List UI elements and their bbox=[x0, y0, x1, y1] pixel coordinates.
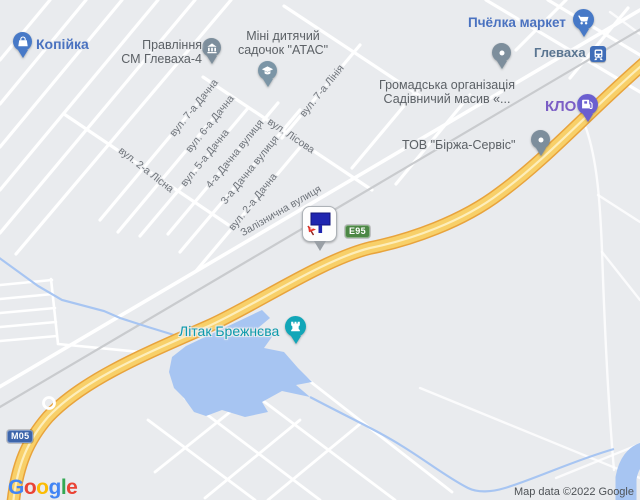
poi-label-line: садочок "АТАС" bbox=[238, 43, 328, 57]
logo-letter: g bbox=[49, 476, 61, 499]
poi-pin-atas[interactable] bbox=[258, 61, 277, 87]
poi-label-line: СМ Глеваха-4 bbox=[121, 52, 202, 66]
google-logo[interactable]: Google bbox=[8, 476, 77, 500]
fuel-pump-icon bbox=[581, 98, 594, 111]
poi-label-klo[interactable]: КЛО bbox=[545, 99, 576, 116]
poi-label-line: Міні дитячий bbox=[246, 29, 320, 43]
logo-letter: o bbox=[24, 476, 36, 499]
map-attribution: Map data ©2022 Google bbox=[514, 486, 634, 498]
poi-label-kopiyka[interactable]: Копійка bbox=[36, 37, 89, 53]
billboard-marker[interactable] bbox=[302, 206, 337, 252]
poi-label-pchelka[interactable]: Пчёлка маркет bbox=[468, 15, 566, 30]
graduation-cap-icon bbox=[261, 64, 274, 77]
bank-icon bbox=[206, 42, 218, 54]
poi-label-line: Садівничий масив «... bbox=[384, 92, 511, 106]
poi-pin-hromadska[interactable] bbox=[492, 43, 511, 69]
poi-label-line: Громадська організація bbox=[379, 78, 515, 92]
generic-dot-icon bbox=[535, 134, 547, 146]
poi-pin-litak[interactable] bbox=[285, 316, 306, 344]
logo-letter: e bbox=[66, 476, 77, 499]
poi-pin-pravlinnia[interactable] bbox=[202, 38, 221, 64]
marker-tail bbox=[314, 241, 326, 251]
poi-label-hromadska[interactable]: Громадська організація Садівничий масив … bbox=[366, 78, 528, 106]
generic-dot-icon bbox=[496, 47, 508, 59]
poi-pin-pchelka[interactable] bbox=[573, 9, 594, 37]
poi-label-litak[interactable]: Літак Брежнєва bbox=[179, 324, 279, 340]
poi-pin-birzha[interactable] bbox=[531, 130, 550, 156]
castle-icon bbox=[289, 320, 302, 333]
map-root: вул. 2-а Лісна вул. 7-а Дачна вул. 6-а Д… bbox=[0, 0, 640, 500]
poi-pin-kopiyka[interactable] bbox=[13, 32, 32, 58]
poi-label-hlevakha[interactable]: Глеваха bbox=[534, 46, 586, 61]
poi-label-birzha[interactable]: ТОВ "Біржа-Сервіс" bbox=[402, 138, 516, 152]
poi-pin-klo[interactable] bbox=[577, 94, 598, 122]
poi-label-pravlinnia[interactable]: Правління СМ Глеваха-4 bbox=[96, 38, 202, 66]
logo-letter: o bbox=[36, 476, 48, 499]
poi-label-atas[interactable]: Міні дитячий садочок "АТАС" bbox=[228, 29, 338, 57]
train-station-icon[interactable] bbox=[590, 46, 606, 62]
billboard-flag-icon bbox=[305, 210, 334, 238]
train-icon bbox=[592, 48, 605, 61]
logo-letter: G bbox=[8, 476, 24, 499]
shopping-bag-icon bbox=[17, 36, 29, 48]
poi-label-line: Правління bbox=[142, 38, 202, 52]
route-badge-e95: E95 bbox=[345, 225, 370, 238]
shopping-cart-icon bbox=[577, 13, 590, 26]
route-badge-m05: M05 bbox=[7, 430, 33, 443]
